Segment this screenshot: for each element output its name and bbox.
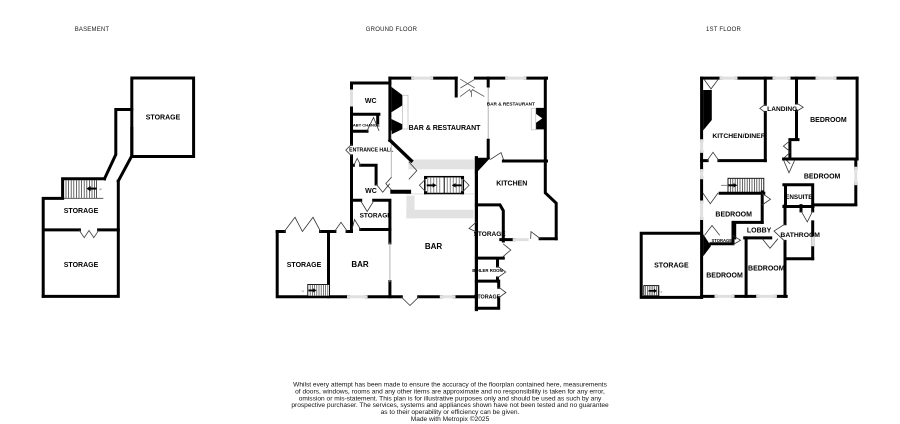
svg-text:STORAGE: STORAGE [474, 294, 501, 300]
svg-text:BEDROOM: BEDROOM [715, 211, 752, 218]
svg-text:ENSUITE: ENSUITE [785, 194, 812, 201]
svg-text:BOILER ROOM: BOILER ROOM [472, 268, 503, 273]
svg-text:BEDROOM: BEDROOM [748, 265, 785, 272]
svg-text:STORAGE: STORAGE [474, 231, 507, 238]
svg-text:BASEMENT: BASEMENT [75, 27, 110, 33]
svg-text:BAR & RESTAURANT: BAR & RESTAURANT [487, 102, 535, 107]
svg-text:STORAGE: STORAGE [64, 262, 99, 269]
svg-text:KITCHEN/DINER: KITCHEN/DINER [712, 133, 765, 140]
svg-text:Made with Metropix ©2025: Made with Metropix ©2025 [411, 415, 490, 423]
svg-text:BAR & RESTAURANT: BAR & RESTAURANT [409, 125, 482, 132]
svg-text:STORAGE: STORAGE [287, 262, 322, 269]
svg-text:STORAGE: STORAGE [360, 213, 393, 220]
svg-text:GROUND FLOOR: GROUND FLOOR [366, 27, 418, 33]
svg-text:WC: WC [365, 188, 377, 195]
svg-text:BEDROOM: BEDROOM [804, 173, 841, 180]
svg-text:STORAGE: STORAGE [64, 208, 99, 215]
svg-text:KITCHEN: KITCHEN [496, 181, 527, 188]
svg-text:STORAGE: STORAGE [711, 238, 732, 243]
svg-text:1ST FLOOR: 1ST FLOOR [706, 27, 741, 33]
svg-text:WC: WC [365, 98, 377, 105]
svg-text:BEDROOM: BEDROOM [706, 273, 743, 280]
svg-text:BATHROOM: BATHROOM [780, 232, 820, 239]
svg-text:STORAGE: STORAGE [654, 263, 689, 270]
svg-text:LANDING: LANDING [767, 106, 797, 113]
svg-text:ENTRANCE HALL: ENTRANCE HALL [349, 148, 394, 154]
svg-text:BAR: BAR [425, 242, 443, 251]
svg-text:LOBBY: LOBBY [747, 228, 772, 235]
svg-text:BAR: BAR [351, 260, 369, 269]
svg-text:BEDROOM: BEDROOM [810, 117, 847, 124]
svg-text:BABY CHANGE: BABY CHANGE [350, 122, 380, 127]
svg-text:STORAGE: STORAGE [146, 115, 181, 122]
